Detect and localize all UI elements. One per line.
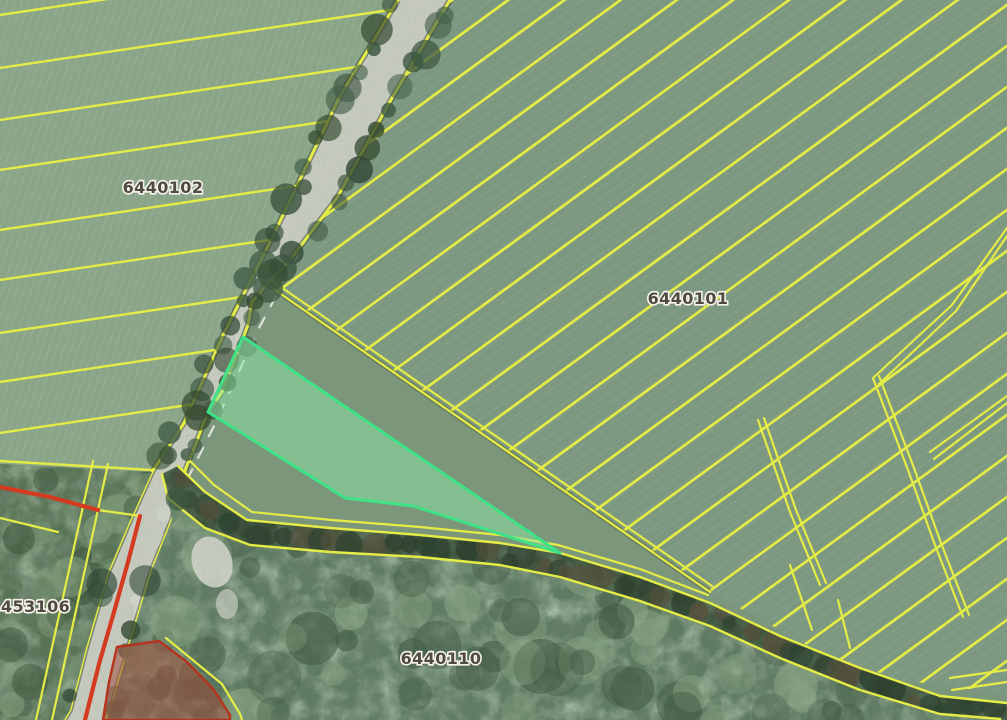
parcel-label-453106: 453106 [1,597,70,616]
parcel-label-6440102: 6440102 [123,178,204,197]
map-canvas[interactable]: 6440102 6440101 453106 6440110 [0,0,1007,720]
parcel-label-6440110: 6440110 [401,649,482,668]
aerial-cadastral-map: 6440102 6440101 453106 6440110 [0,0,1007,720]
parcel-label-6440101: 6440101 [648,289,729,308]
image-grain-overlay [0,0,1007,720]
